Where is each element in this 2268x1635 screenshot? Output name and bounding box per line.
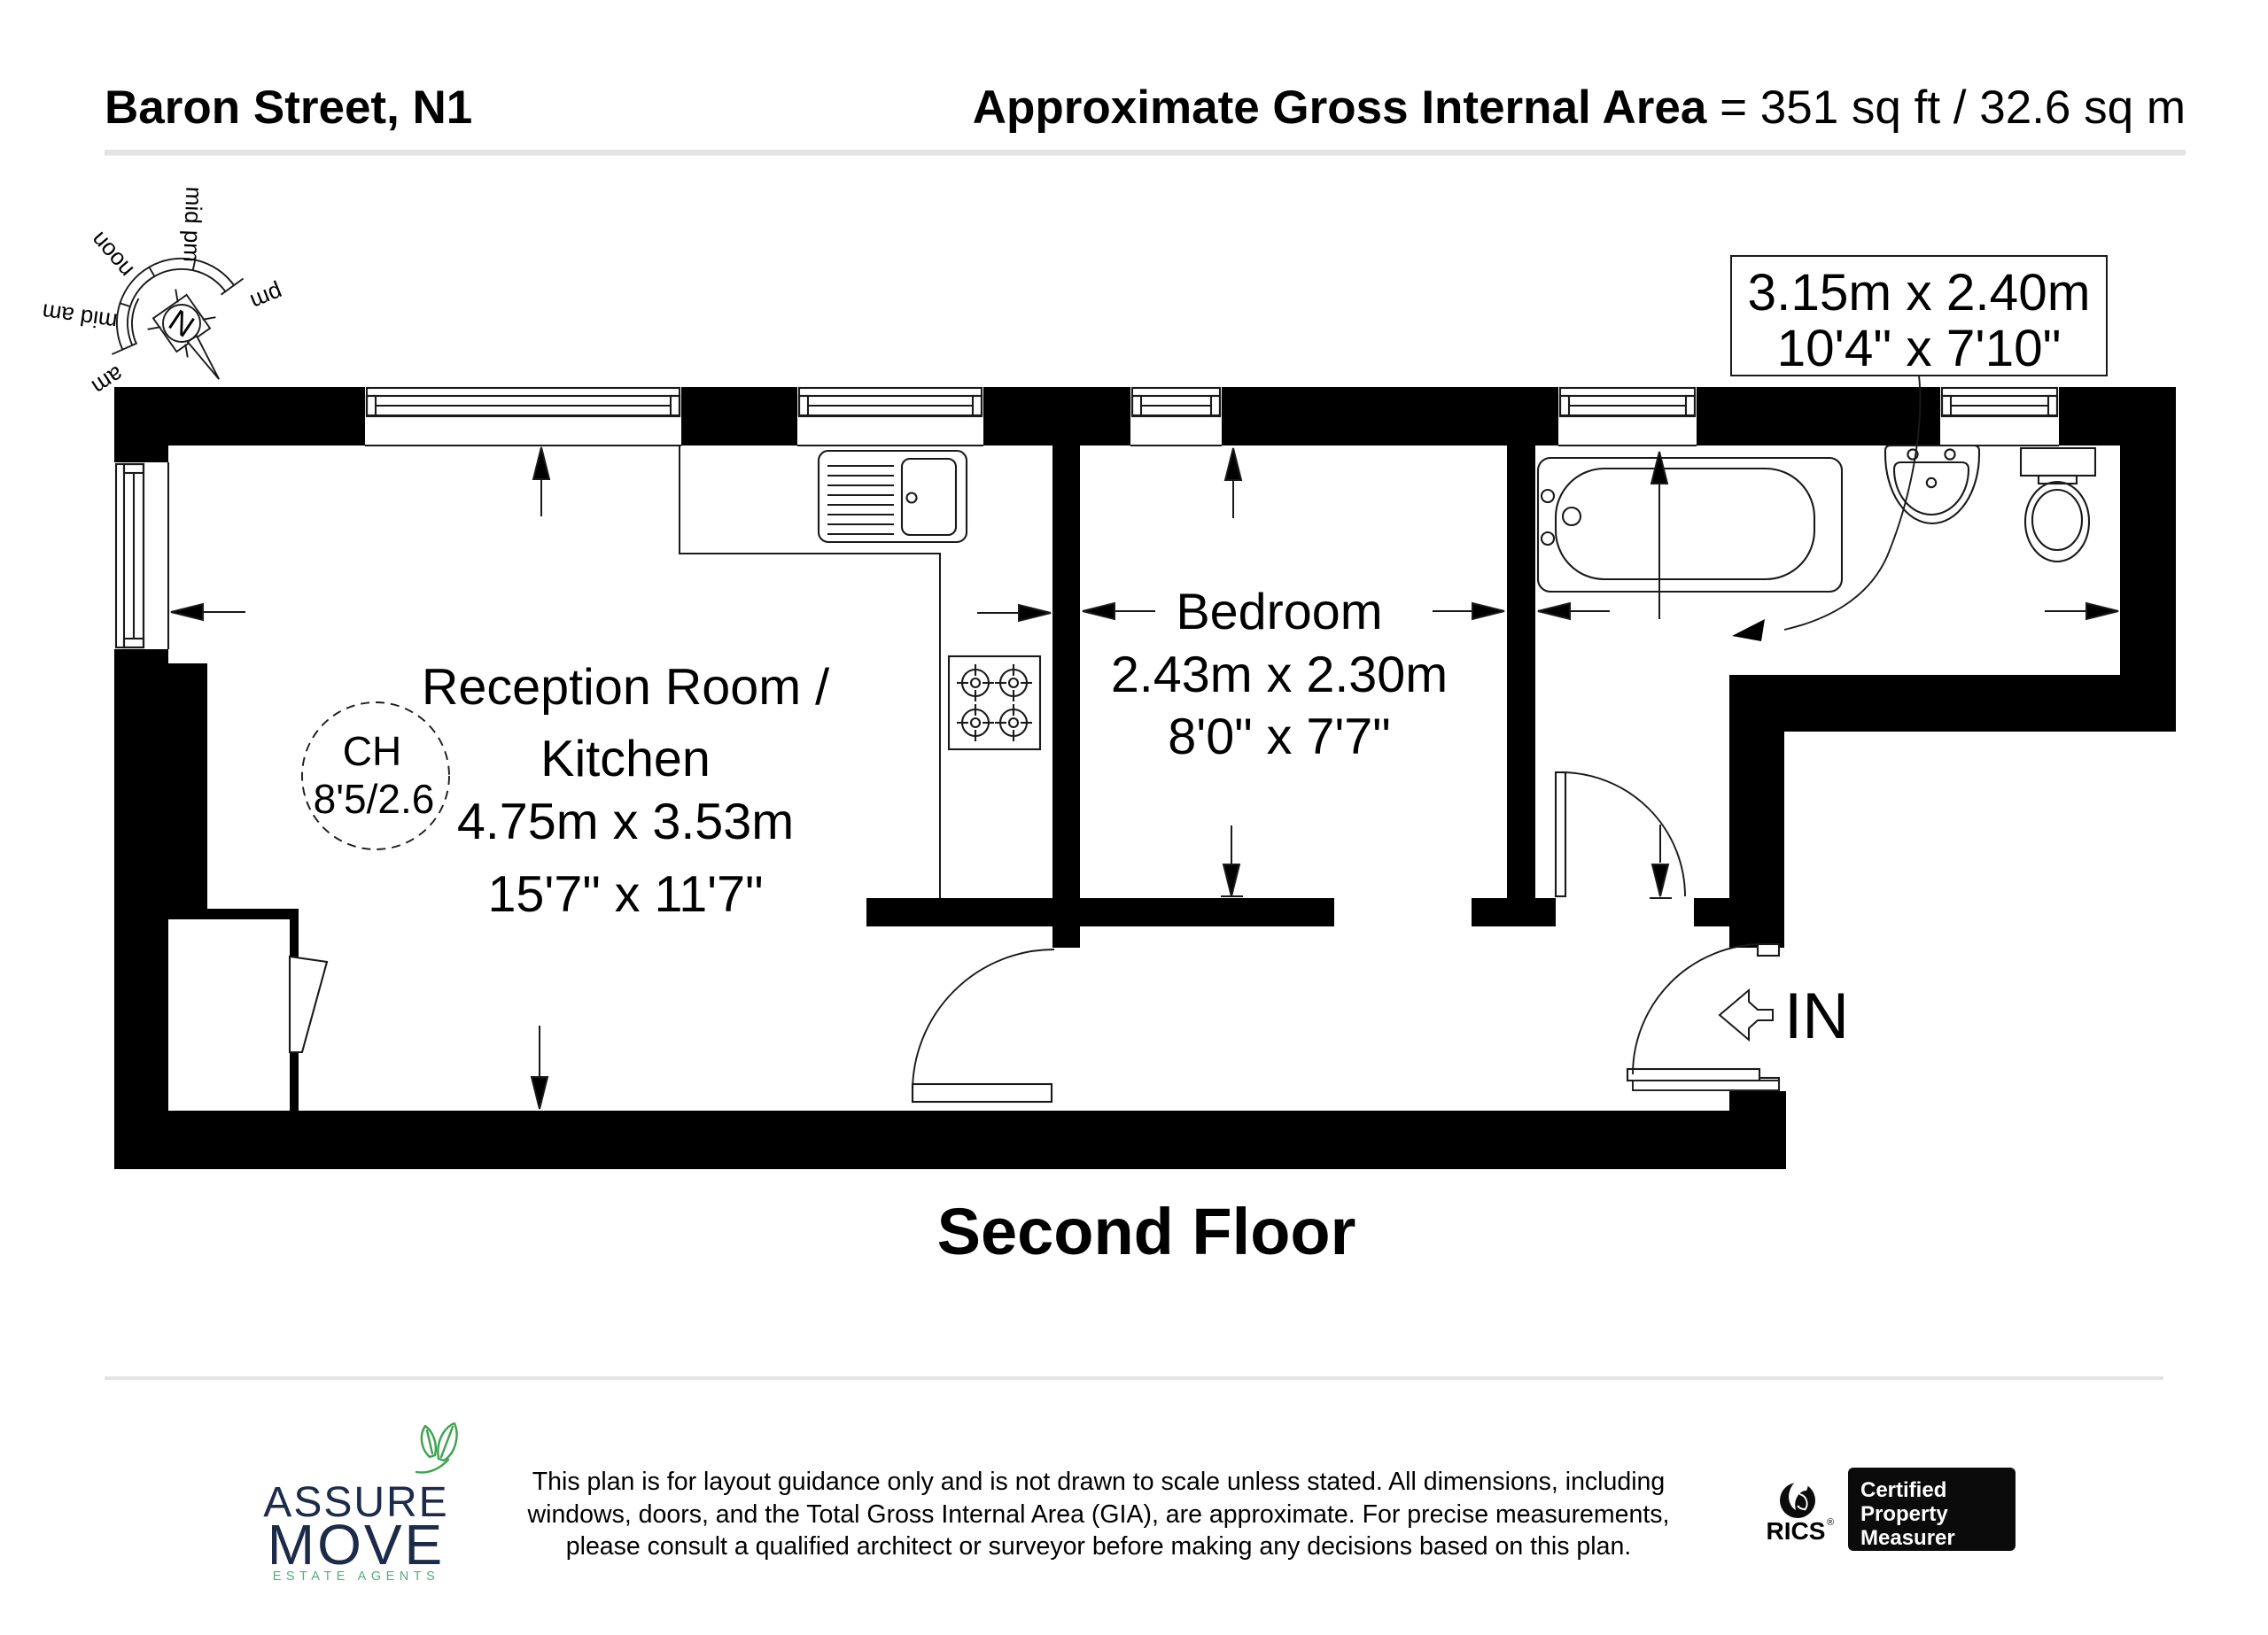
svg-text:IN: IN	[1784, 980, 1849, 1052]
svg-text:10'4" x 7'10": 10'4" x 7'10"	[1777, 320, 2062, 377]
svg-text:This plan is for layout guidan: This plan is for layout guidance only an…	[532, 1468, 1665, 1496]
svg-text:3.15m x 2.40m: 3.15m x 2.40m	[1748, 264, 2091, 322]
svg-text:®: ®	[1827, 1517, 1834, 1528]
svg-text:Property: Property	[1860, 1502, 1948, 1526]
svg-text:8'5/2.6: 8'5/2.6	[314, 776, 435, 822]
svg-text:Kitchen: Kitchen	[540, 731, 711, 787]
svg-text:4.75m x 3.53m: 4.75m x 3.53m	[457, 794, 794, 850]
svg-text:15'7" x 11'7": 15'7" x 11'7"	[487, 866, 763, 923]
svg-text:mid pm: mid pm	[178, 186, 207, 262]
svg-text:Reception Room /: Reception Room /	[422, 659, 829, 716]
svg-text:Bedroom: Bedroom	[1176, 584, 1382, 640]
svg-text:8'0" x 7'7": 8'0" x 7'7"	[1168, 709, 1390, 765]
svg-text:windows, doors, and the Total: windows, doors, and the Total Gross Inte…	[527, 1500, 1670, 1529]
svg-text:Measurer: Measurer	[1860, 1526, 1955, 1550]
svg-text:RICS: RICS	[1767, 1517, 1826, 1545]
svg-text:2.43m x 2.30m: 2.43m x 2.30m	[1111, 647, 1448, 703]
svg-text:ESTATE AGENTS: ESTATE AGENTS	[273, 1569, 440, 1584]
svg-text:please consult a qualified arc: please consult a qualified architect or …	[566, 1532, 1631, 1561]
svg-text:MOVE: MOVE	[268, 1513, 445, 1577]
svg-text:Second Floor: Second Floor	[937, 1195, 1356, 1268]
svg-text:Baron Street, N1: Baron Street, N1	[105, 81, 472, 134]
svg-text:CH: CH	[343, 728, 401, 774]
svg-text:Approximate Gross Internal Are: Approximate Gross Internal Area = 351 sq…	[973, 81, 2186, 134]
svg-text:Certified: Certified	[1860, 1478, 1946, 1502]
